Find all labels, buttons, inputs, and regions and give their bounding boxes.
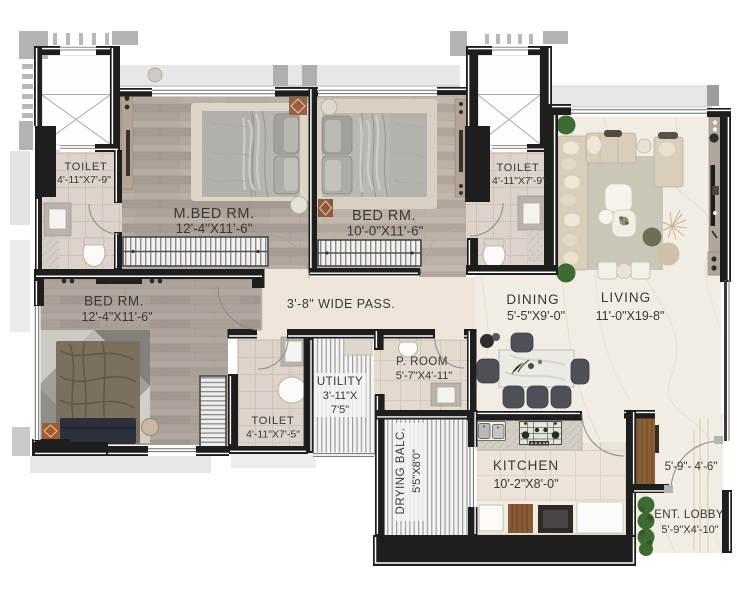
svg-text:5'-7"X4'-11": 5'-7"X4'-11" <box>396 370 453 382</box>
svg-text:5'5"X8'0": 5'5"X8'0" <box>411 449 423 493</box>
svg-text:4'-11"X7'-9": 4'-11"X7'-9" <box>492 175 546 187</box>
svg-text:BED RM.: BED RM. <box>352 208 416 224</box>
svg-text:5'-9"X4'-10": 5'-9"X4'-10" <box>661 524 718 536</box>
svg-text:7'5": 7'5" <box>331 404 349 416</box>
svg-text:12'-4"X11'-6": 12'-4"X11'-6" <box>81 310 152 324</box>
svg-text:DINING: DINING <box>506 292 559 307</box>
svg-text:TOILET: TOILET <box>64 161 107 173</box>
svg-text:4'-11"X7'-5": 4'-11"X7'-5" <box>246 429 300 441</box>
svg-text:3'-11"X: 3'-11"X <box>323 390 358 402</box>
svg-text:5'-9"- 4'-6": 5'-9"- 4'-6" <box>665 461 718 473</box>
svg-text:M.BED RM.: M.BED RM. <box>173 206 254 222</box>
svg-text:DRYING BALC.: DRYING BALC. <box>395 428 407 515</box>
svg-text:10'-0"X11'-6": 10'-0"X11'-6" <box>347 224 424 239</box>
svg-text:10'-2"X8'-0": 10'-2"X8'-0" <box>493 477 558 491</box>
svg-text:KITCHEN: KITCHEN <box>493 458 559 473</box>
svg-text:ENT. LOBBY: ENT. LOBBY <box>654 509 723 521</box>
svg-text:BED RM.: BED RM. <box>84 294 144 309</box>
svg-text:4'-11"X7'-9": 4'-11"X7'-9" <box>57 174 111 186</box>
svg-text:12'-4"X11'-6": 12'-4"X11'-6" <box>176 221 253 236</box>
svg-text:UTILITY: UTILITY <box>317 376 363 388</box>
svg-text:P. ROOM: P. ROOM <box>396 356 448 368</box>
svg-text:11'-0"X19-8": 11'-0"X19-8" <box>596 309 665 323</box>
svg-text:5'-5"X9'-0": 5'-5"X9'-0" <box>507 309 565 323</box>
svg-text:TOILET: TOILET <box>496 162 539 174</box>
svg-text:LIVING: LIVING <box>601 290 651 305</box>
svg-text:3'-8" WIDE PASS.: 3'-8" WIDE PASS. <box>287 297 395 311</box>
svg-text:TOILET: TOILET <box>251 415 294 427</box>
